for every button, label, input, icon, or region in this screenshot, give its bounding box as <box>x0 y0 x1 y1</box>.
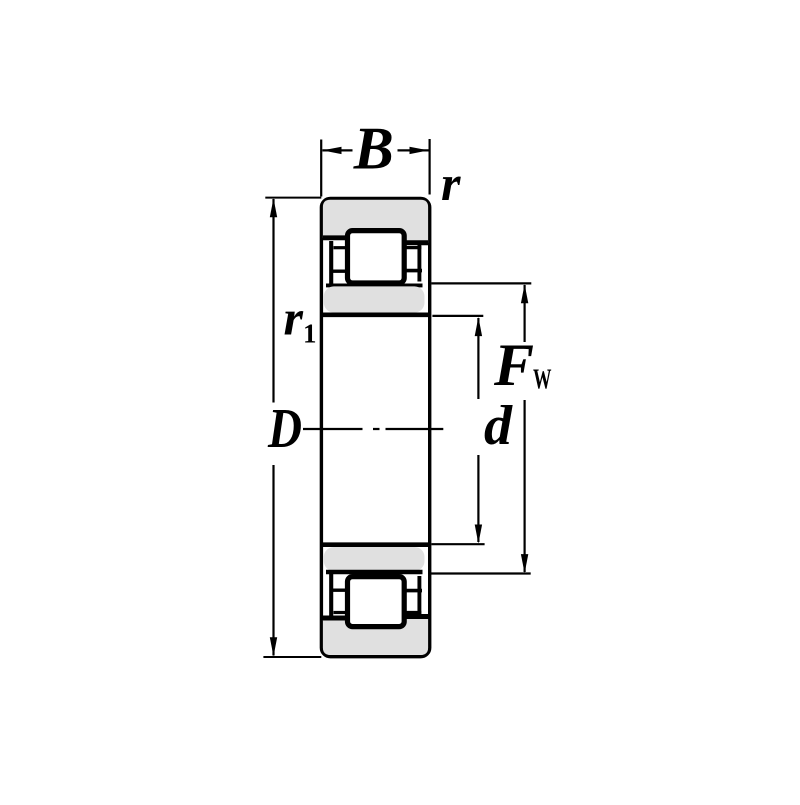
svg-text:r: r <box>441 155 461 211</box>
svg-text:W: W <box>533 364 552 396</box>
svg-text:D: D <box>267 398 302 460</box>
svg-text:d: d <box>484 395 513 457</box>
svg-text:B: B <box>353 116 394 182</box>
svg-text:F: F <box>493 332 534 398</box>
